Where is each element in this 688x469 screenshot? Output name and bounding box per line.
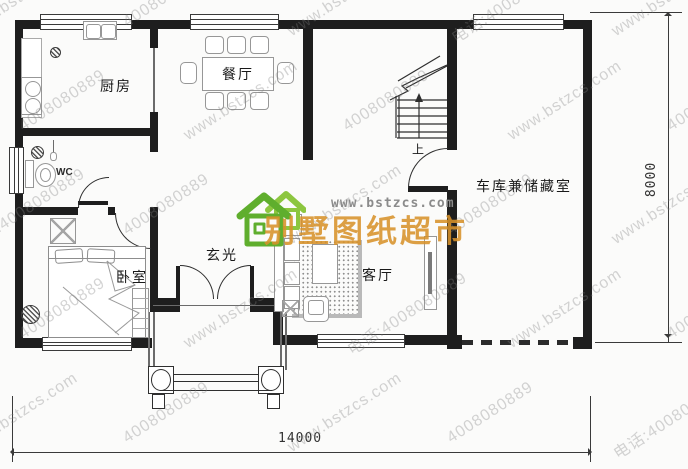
porch-threshold: [153, 305, 285, 306]
dining-chair: [277, 62, 294, 84]
kitchen-sink: [83, 21, 117, 40]
porch-wall: [153, 312, 155, 370]
wc-door-swing: [78, 177, 109, 208]
dim-arrow-left: [6, 448, 14, 456]
watermark-text: www.bstzcs.com: [609, 0, 688, 41]
wall-segment: [130, 20, 190, 29]
living-window: [317, 334, 405, 348]
kitchen-label: 厨房: [100, 76, 132, 96]
kitchen-door-opening: [153, 48, 155, 112]
wc-label: WC: [56, 167, 73, 178]
kitchen-stove: [21, 77, 42, 115]
dining-window: [190, 14, 279, 30]
toilet-tank: [25, 160, 34, 188]
kitchen-drain: [50, 47, 61, 58]
dim-arrow-right: [588, 448, 596, 456]
bedroom-stool: [21, 305, 40, 324]
dining-chair: [205, 92, 224, 110]
dining-chair: [250, 92, 269, 110]
garage-window: [473, 14, 564, 30]
living-label: 客厅: [362, 265, 394, 285]
porch-step: [174, 381, 258, 382]
blanket-folds: [49, 247, 145, 337]
bedroom-door-swing: [115, 213, 151, 249]
porch-step-foot: [152, 394, 165, 409]
toilet-bowl: [35, 163, 56, 187]
watermark-text: 4008080889: [444, 378, 537, 447]
pendant-light: [50, 152, 57, 161]
height-dimension: 8000: [644, 162, 659, 197]
stair-up-arrow: [415, 93, 423, 102]
dining-chair: [205, 36, 224, 54]
entry-door-swing: [217, 265, 251, 299]
wall-segment: [303, 28, 313, 160]
sofa-cushion: [284, 262, 300, 285]
entry-door-swing: [180, 265, 214, 299]
wall-segment: [15, 192, 23, 348]
end-table: [282, 300, 299, 317]
shower-head: [31, 146, 44, 159]
wc-window: [9, 147, 24, 194]
wall-segment: [150, 28, 158, 48]
dim-arrow-down: [664, 334, 672, 342]
wall-segment: [15, 338, 42, 348]
porch-step: [174, 374, 258, 375]
watermark-text: 电话:4008080889: [608, 368, 688, 464]
garage-door-dashed: [462, 340, 573, 345]
wall-segment: [15, 128, 158, 136]
dining-chair: [250, 36, 269, 54]
wardrobe: [132, 288, 149, 338]
stair-up-label: 上: [412, 141, 426, 158]
dining-chair: [227, 36, 246, 54]
porch-step: [160, 390, 272, 391]
logo-text: 别墅图纸超市: [264, 206, 468, 251]
dining-label: 餐厅: [222, 64, 254, 84]
wall-segment: [108, 207, 115, 215]
dim-arrow-up: [664, 8, 672, 16]
bedroom-label: 卧室: [116, 267, 148, 287]
width-dimension: 14000: [278, 431, 322, 446]
wall-segment: [583, 20, 592, 345]
armchair: [303, 296, 329, 322]
porch-wall: [285, 312, 287, 370]
floor-plan: 上: [0, 0, 688, 469]
wall-segment: [150, 207, 158, 312]
garage-label: 车库兼储藏室: [476, 176, 572, 196]
watermark-text: www.bstzcs.com: [505, 57, 626, 144]
dining-chair: [180, 62, 197, 84]
porch-step-foot: [267, 394, 280, 409]
bedroom-window: [42, 337, 132, 351]
nightstand: [50, 218, 76, 244]
wall-segment: [573, 337, 592, 349]
porch-wall: [280, 312, 282, 370]
wall-segment: [15, 207, 78, 215]
wall-segment: [403, 335, 462, 345]
staircase: [388, 50, 450, 150]
foyer-label: 玄光: [206, 245, 238, 265]
dining-chair: [227, 92, 246, 110]
